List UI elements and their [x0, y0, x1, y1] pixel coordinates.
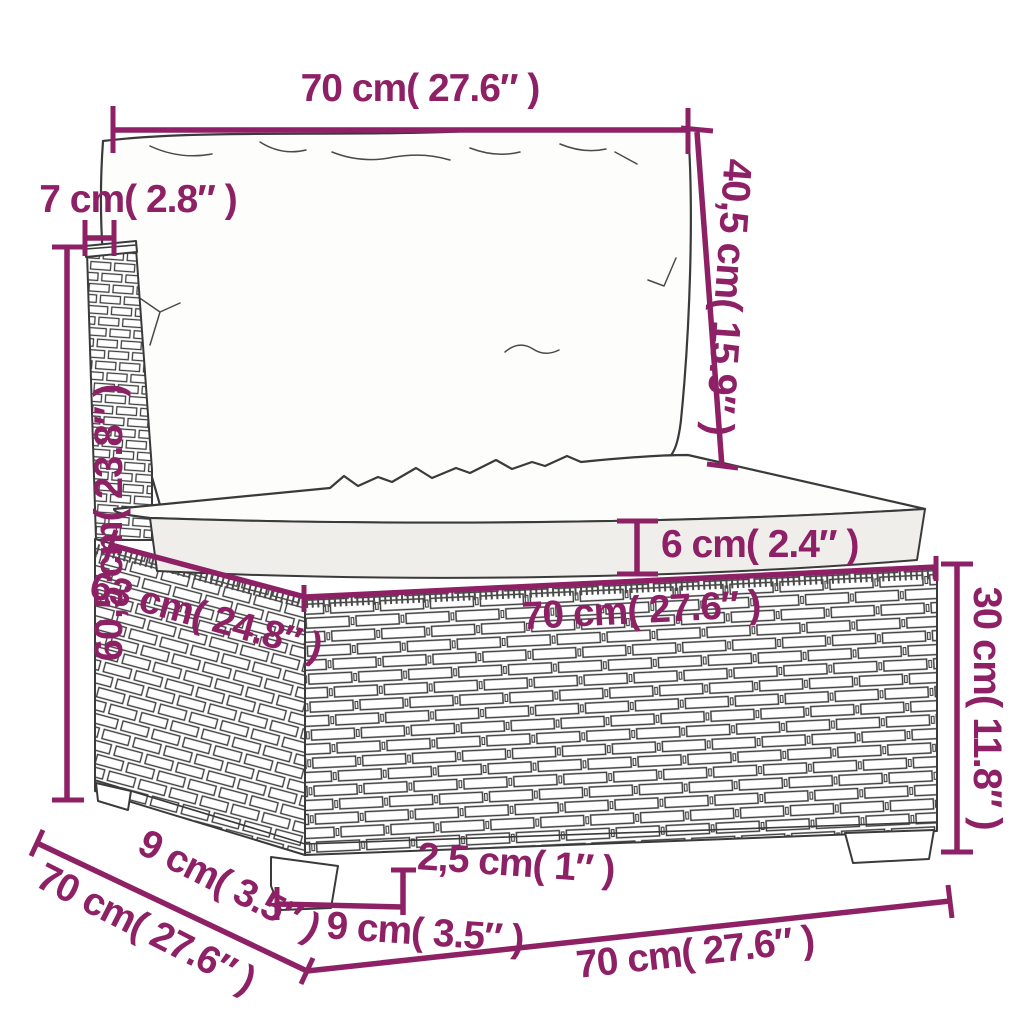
- dimension-label: 60,5 cm( 23.8″ ): [87, 385, 131, 662]
- furniture-dimension-diagram: 70 cm( 27.6″ ) 7 cm( 2.8″ ) 60,5 cm( 23.…: [0, 0, 1024, 1024]
- dimension-foot-height: 2,5 cm( 1″ ): [391, 835, 616, 915]
- dimension-base-height: 30 cm( 11.8″ ): [941, 564, 1009, 852]
- dimension-label: 30 cm( 11.8″ ): [965, 586, 1009, 829]
- sofa-illustration: [85, 129, 937, 910]
- dimension-label: 6 cm( 2.4″ ): [661, 523, 858, 566]
- dimension-back-cushion-height: 40,5 cm( 15.9″ ): [681, 128, 760, 468]
- dimension-label: 40,5 cm( 15.9″ ): [696, 157, 759, 436]
- dimension-label: 70 cm( 27.6″ ): [301, 67, 540, 110]
- dimension-label: 7 cm( 2.8″ ): [39, 178, 236, 221]
- foot-front-right: [845, 830, 934, 863]
